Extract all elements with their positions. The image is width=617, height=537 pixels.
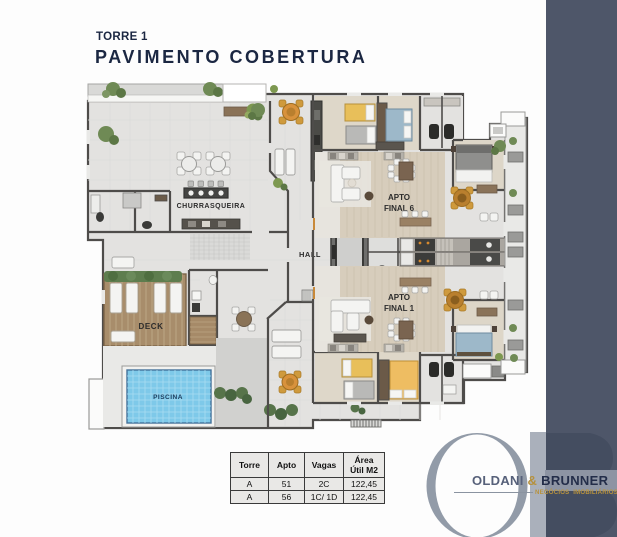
svg-text:CHURRASQUEIRA: CHURRASQUEIRA xyxy=(177,203,246,210)
svg-text:APTO: APTO xyxy=(388,293,410,302)
svg-text:FINAL 1: FINAL 1 xyxy=(384,304,415,313)
svg-text:HALL: HALL xyxy=(299,250,321,259)
svg-text:DECK: DECK xyxy=(138,322,163,331)
svg-text:PISCINA: PISCINA xyxy=(153,394,183,401)
svg-text:APTO: APTO xyxy=(388,193,410,202)
svg-text:FINAL 6: FINAL 6 xyxy=(384,204,415,213)
